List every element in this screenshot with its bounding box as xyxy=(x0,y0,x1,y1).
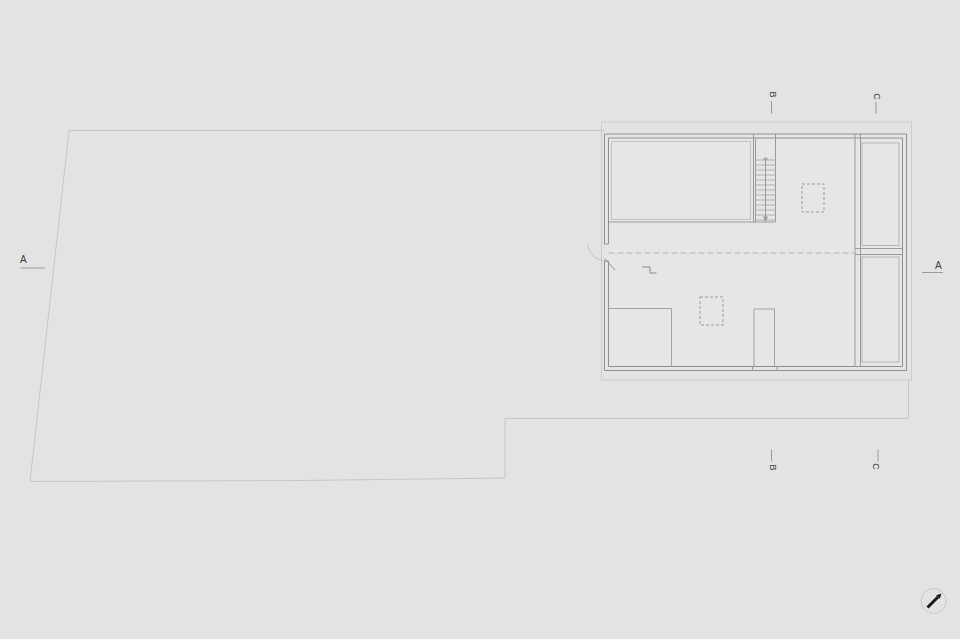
section-marker-b-bottom: B xyxy=(768,464,777,470)
door-swing-arc xyxy=(588,244,605,261)
section-marker-c-top: C xyxy=(872,93,881,100)
drawing-sheet: A A B C B C xyxy=(0,0,960,639)
section-marker-b-top: B xyxy=(768,91,777,97)
section-marker-a-right: A xyxy=(935,261,942,271)
floor-plan-drawing xyxy=(0,0,960,639)
section-marker-c-bottom: C xyxy=(871,463,880,470)
building xyxy=(588,122,912,380)
section-marker-a-left: A xyxy=(20,255,27,265)
north-arrow-icon xyxy=(921,589,946,614)
